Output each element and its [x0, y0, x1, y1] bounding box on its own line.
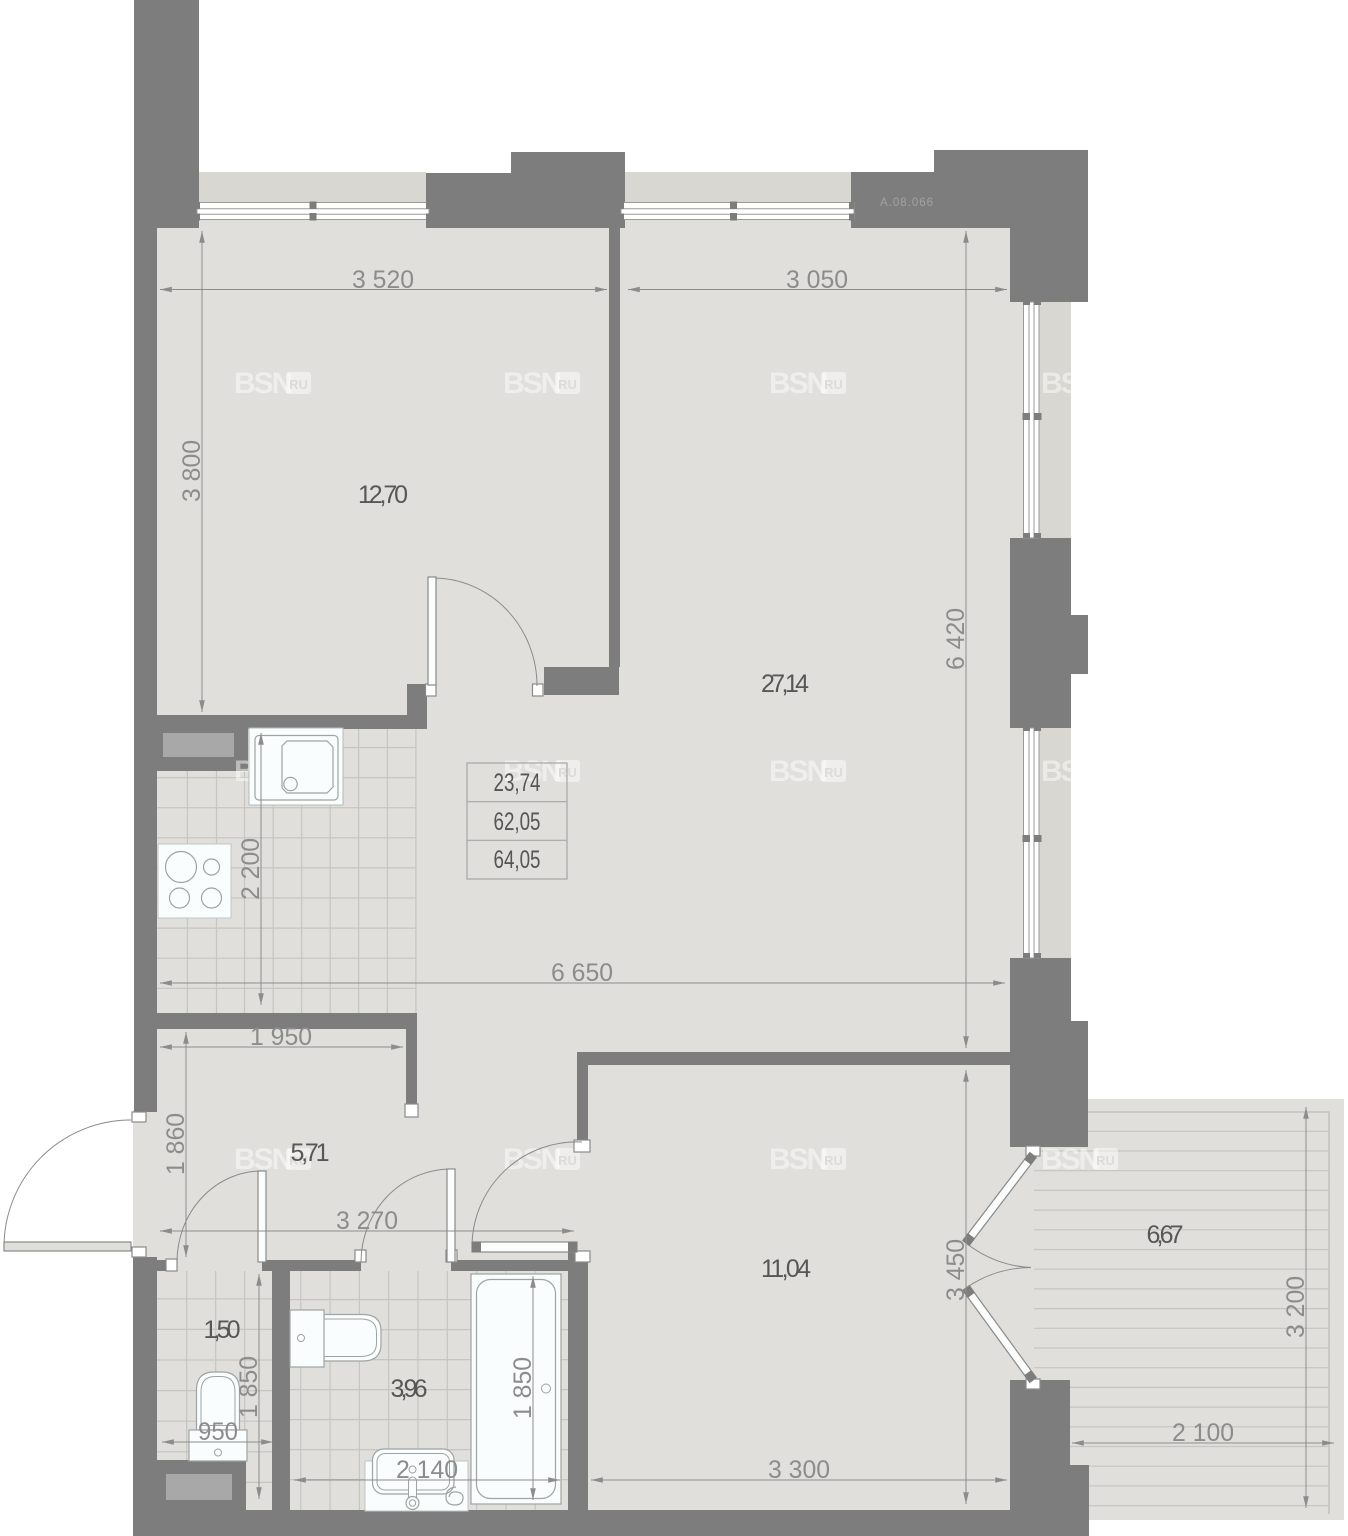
svg-text:2 100: 2 100: [1172, 1419, 1234, 1447]
svg-text:RU: RU: [1096, 1153, 1115, 1168]
svg-text:6,67: 6,67: [1147, 1221, 1184, 1249]
svg-text:BSN: BSN: [769, 367, 827, 400]
svg-text:64,05: 64,05: [494, 846, 541, 874]
svg-text:62,05: 62,05: [494, 808, 541, 836]
svg-text:RU: RU: [289, 377, 308, 392]
svg-text:3 450: 3 450: [942, 1239, 970, 1301]
svg-text:RU: RU: [558, 1153, 577, 1168]
svg-text:3,96: 3,96: [391, 1375, 428, 1403]
svg-text:1 950: 1 950: [250, 1023, 312, 1051]
svg-text:3 300: 3 300: [768, 1456, 830, 1484]
svg-text:RU: RU: [824, 1153, 843, 1168]
svg-text:BSN: BSN: [503, 367, 561, 400]
svg-text:5,71: 5,71: [291, 1139, 330, 1167]
svg-text:3 200: 3 200: [1282, 1276, 1310, 1338]
svg-text:1,50: 1,50: [204, 1316, 241, 1344]
svg-text:3 270: 3 270: [336, 1207, 398, 1235]
svg-text:27,14: 27,14: [761, 670, 809, 698]
svg-text:RU: RU: [824, 377, 843, 392]
svg-text:BSN: BSN: [769, 1143, 827, 1176]
svg-text:BSN: BSN: [503, 1143, 561, 1176]
svg-text:6 650: 6 650: [551, 959, 613, 987]
svg-text:1 850: 1 850: [509, 1357, 537, 1419]
svg-text:BSN: BSN: [769, 755, 827, 788]
svg-text:2 200: 2 200: [237, 838, 265, 900]
svg-text:23,74: 23,74: [494, 769, 541, 797]
svg-text:3 800: 3 800: [178, 440, 206, 502]
svg-text:11,04: 11,04: [761, 1255, 811, 1283]
svg-text:6 420: 6 420: [942, 608, 970, 670]
svg-text:BSN: BSN: [1041, 1143, 1099, 1176]
svg-text:1 860: 1 860: [162, 1113, 190, 1175]
svg-text:3 520: 3 520: [352, 266, 414, 294]
svg-text:2 140: 2 140: [396, 1456, 458, 1484]
svg-text:RU: RU: [824, 765, 843, 780]
svg-text:BSN: BSN: [234, 367, 292, 400]
svg-text:1 850: 1 850: [235, 1356, 263, 1418]
svg-text:12,70: 12,70: [358, 481, 408, 509]
svg-text:3 050: 3 050: [786, 266, 848, 294]
svg-text:A.08.066: A.08.066: [880, 197, 934, 209]
svg-text:RU: RU: [558, 377, 577, 392]
svg-text:950: 950: [198, 1418, 238, 1446]
